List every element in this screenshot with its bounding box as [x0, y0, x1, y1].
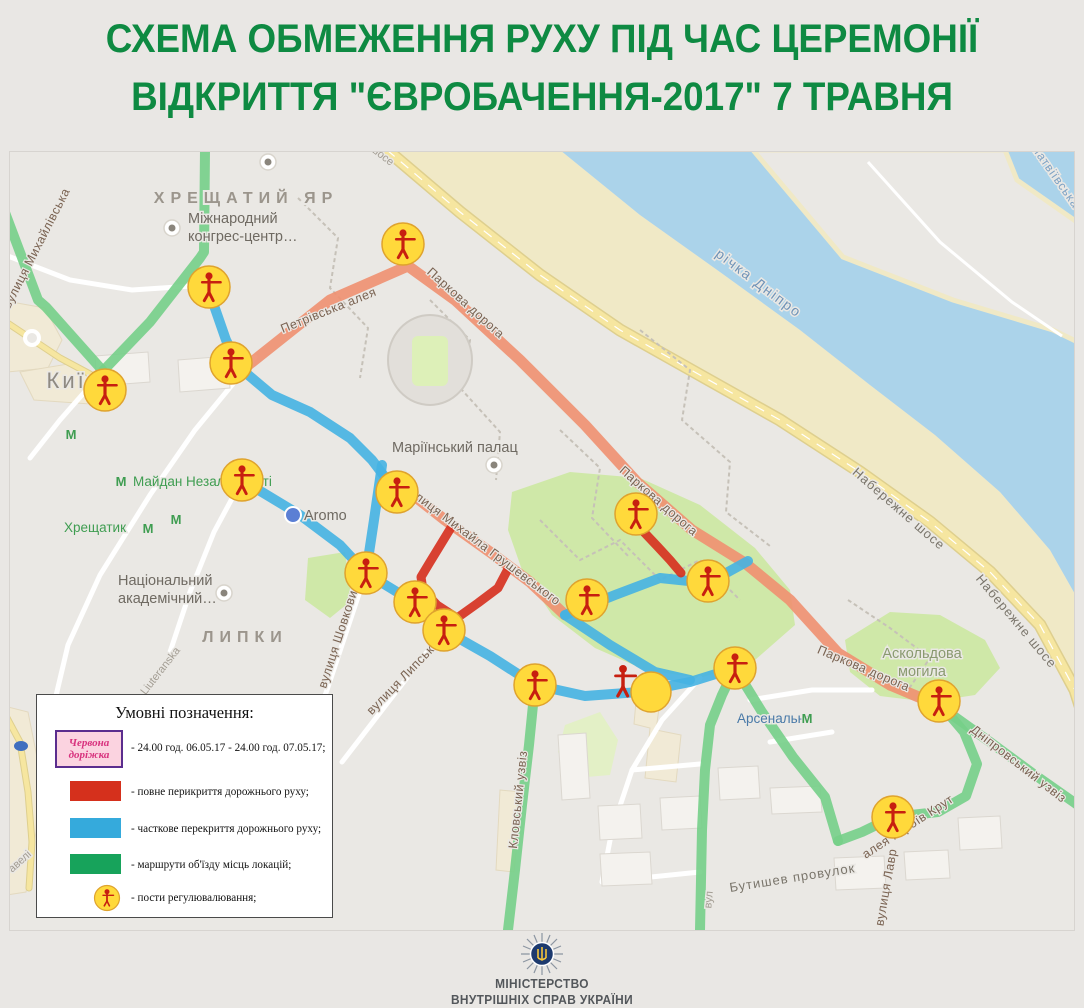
traffic-post-icon [714, 647, 756, 689]
traffic-post-icon [918, 680, 960, 722]
building [904, 850, 950, 880]
full-closure-swatch [70, 781, 121, 801]
mvs-badge-icon [514, 932, 570, 976]
traffic-post-icon [382, 223, 424, 265]
page-title: СХЕМА ОБМЕЖЕННЯ РУХУ ПІД ЧАС ЦЕРЕМОНІЇ В… [0, 10, 1084, 126]
legend-item-full-closure: - повне перикриття дорожнього руху; [131, 784, 326, 799]
page-title-line2: ВІДКРИТТЯ "ЄВРОБАЧЕННЯ-2017" 7 ТРАВНЯ [43, 68, 1040, 126]
traffic-post-icon [188, 266, 230, 308]
legend-item-red-carpet: - 24.00 год. 06.05.17 - 24.00 год. 07.05… [131, 740, 326, 755]
stadium-field [412, 336, 448, 386]
map-label: конгрес-центр… [188, 229, 298, 245]
traffic-post-icon [376, 471, 418, 513]
legend-item-detour: - маршрути об'їзду місць локацій; [131, 857, 326, 872]
metro-icon: М [116, 474, 127, 489]
poi-glyph [221, 590, 228, 597]
metro-icon: М [66, 427, 77, 442]
map-label: вул [702, 891, 715, 909]
traffic-post-icon [210, 342, 252, 384]
building [660, 796, 702, 830]
metro-icon: М [143, 521, 154, 536]
poi-icon [285, 507, 301, 523]
map-label: Хрещатик [64, 520, 126, 535]
footer-line2: ВНУТРІШНІХ СПРАВ УКРАЇНИ [27, 992, 1057, 1008]
traffic-post-icon [93, 884, 121, 917]
building [958, 816, 1002, 850]
traffic-post-icon [566, 579, 608, 621]
red-carpet-swatch: Червона доріжка [55, 730, 123, 768]
page-title-line1: СХЕМА ОБМЕЖЕННЯ РУХУ ПІД ЧАС ЦЕРЕМОНІЇ [43, 10, 1040, 68]
footer-line1: МІНІСТЕРСТВО [27, 976, 1057, 992]
map-label: академічний… [118, 591, 217, 607]
poi-glyph [169, 225, 176, 232]
map-label: Маріїнський палац [392, 440, 518, 456]
map-label: Aromo [304, 508, 347, 524]
traffic-post-icon [345, 552, 387, 594]
map-label: ЛИПКИ [202, 629, 288, 646]
traffic-post-icon [872, 796, 914, 838]
poi-glyph [265, 159, 272, 166]
building [598, 804, 642, 840]
traffic-post-icon [423, 609, 465, 651]
road-shield-icon [14, 741, 28, 751]
control-point-icon [631, 672, 671, 712]
legend-item-partial-closure: - часткове перекриття дорожнього руху; [131, 821, 326, 836]
legend-item-posts: - пости регулювалювання; [131, 890, 326, 905]
infographic-page: { "title": { "line1": "СХЕМА ОБМЕЖЕННЯ Р… [0, 0, 1084, 1002]
metro-icon: М [171, 512, 182, 527]
legend-title: Умовні позначення: [37, 703, 332, 723]
building [558, 733, 590, 800]
building [600, 852, 652, 886]
traffic-post-icon [221, 459, 263, 501]
map-label: могила [898, 664, 947, 680]
detour-swatch [70, 854, 121, 874]
partial-closure-swatch [70, 818, 121, 838]
traffic-post-icon [84, 369, 126, 411]
map-label: Міжнародний [188, 211, 278, 227]
roundabout [25, 331, 39, 345]
poi-glyph [491, 462, 498, 469]
traffic-post-icon [514, 664, 556, 706]
map-label: Аскольдова [882, 646, 962, 662]
building [718, 766, 760, 800]
legend-panel: Умовні позначення: Червона доріжка - 24.… [36, 694, 333, 918]
traffic-post-icon [615, 493, 657, 535]
map-label: Національний [118, 573, 212, 589]
traffic-post-icon [687, 560, 729, 602]
map-label: ХРЕЩАТИЙ ЯР [154, 188, 338, 207]
footer: МІНІСТЕРСТВО ВНУТРІШНІХ СПРАВ УКРАЇНИ [0, 932, 1084, 1008]
metro-icon: М [802, 711, 813, 726]
